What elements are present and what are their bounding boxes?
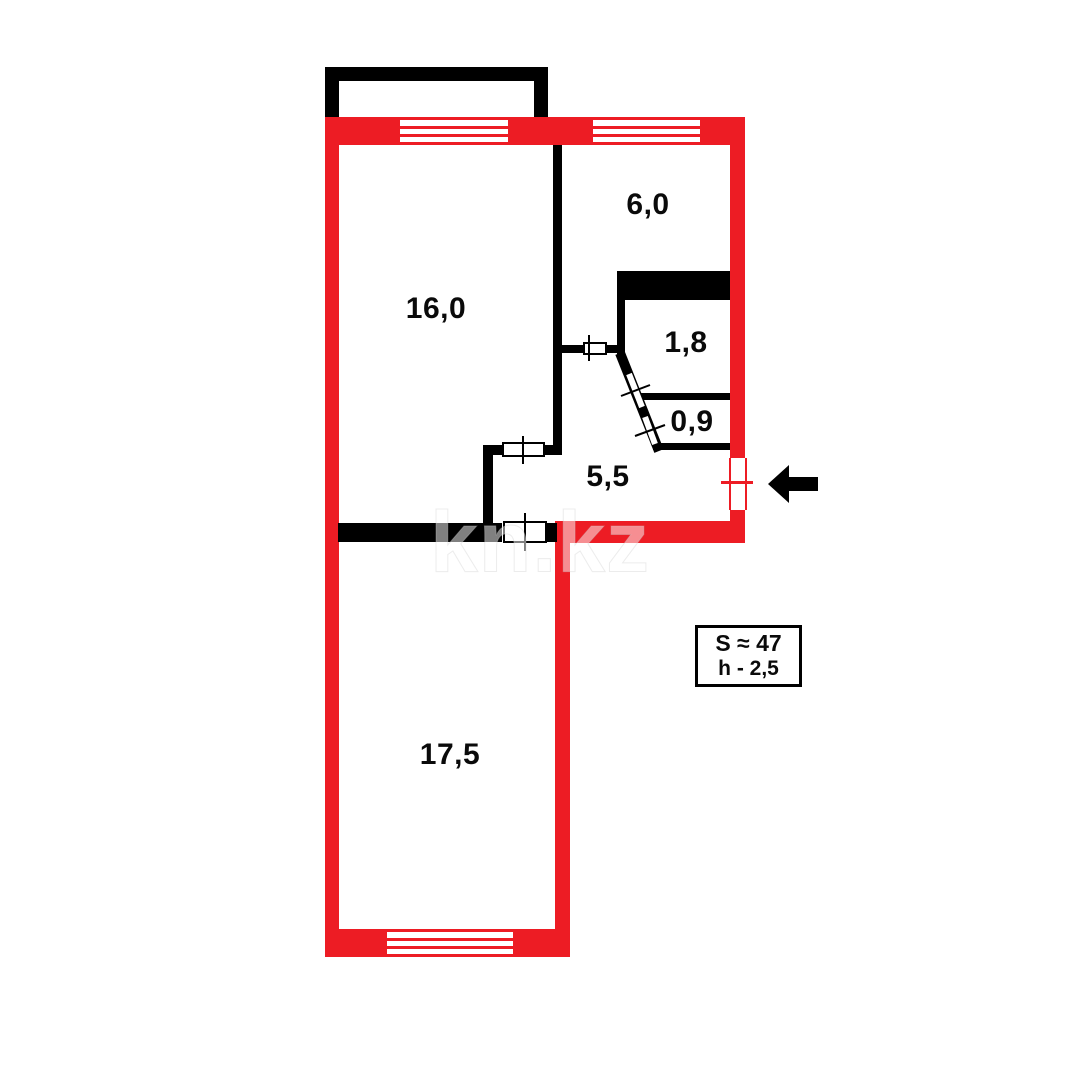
balcony-outline [325, 67, 548, 117]
total-area-text: S ≈ 47 [715, 631, 781, 657]
room-label-bedroom: 17,5 [420, 738, 480, 772]
closet-left-wall [617, 300, 625, 356]
door-kitchen-tick [588, 335, 590, 361]
info-box: S ≈ 47 h - 2,5 [695, 625, 802, 687]
room-label-hallway: 5,5 [586, 460, 629, 494]
floor-plan: 16,0 6,0 1,8 0,9 5,5 17,5 S ≈ 47 h - 2,5… [0, 0, 1080, 1080]
wall-left [325, 117, 339, 957]
door-kitchen [583, 342, 607, 355]
ceiling-height-text: h - 2,5 [718, 657, 779, 681]
window-top-left [400, 117, 508, 145]
room-label-closet: 1,8 [664, 326, 707, 360]
partition-kitchen-hall-a [562, 345, 583, 353]
room-label-living: 16,0 [406, 292, 466, 326]
partition-living-kitchen [553, 145, 562, 455]
partition-closet-bathroom [640, 393, 730, 400]
window-top-right [593, 117, 700, 145]
diagonal-wall [620, 353, 665, 451]
closet-top-wall [617, 271, 730, 300]
entrance-door-opening [729, 458, 747, 510]
room-label-bathroom: 0,9 [670, 405, 713, 439]
door-living-room-tick [522, 436, 524, 464]
entrance-door-tick [721, 481, 753, 484]
entrance-arrow-icon [768, 465, 818, 503]
room-label-kitchen: 6,0 [626, 188, 669, 222]
door-closet-gap [629, 374, 642, 407]
watermark: kn.kz [430, 494, 650, 593]
door-bathroom-tick [635, 425, 665, 436]
bathroom-bottom-wall [653, 443, 730, 450]
window-bottom [387, 929, 513, 957]
partition-living-hall-b [545, 445, 562, 455]
door-bathroom-gap [645, 417, 655, 444]
